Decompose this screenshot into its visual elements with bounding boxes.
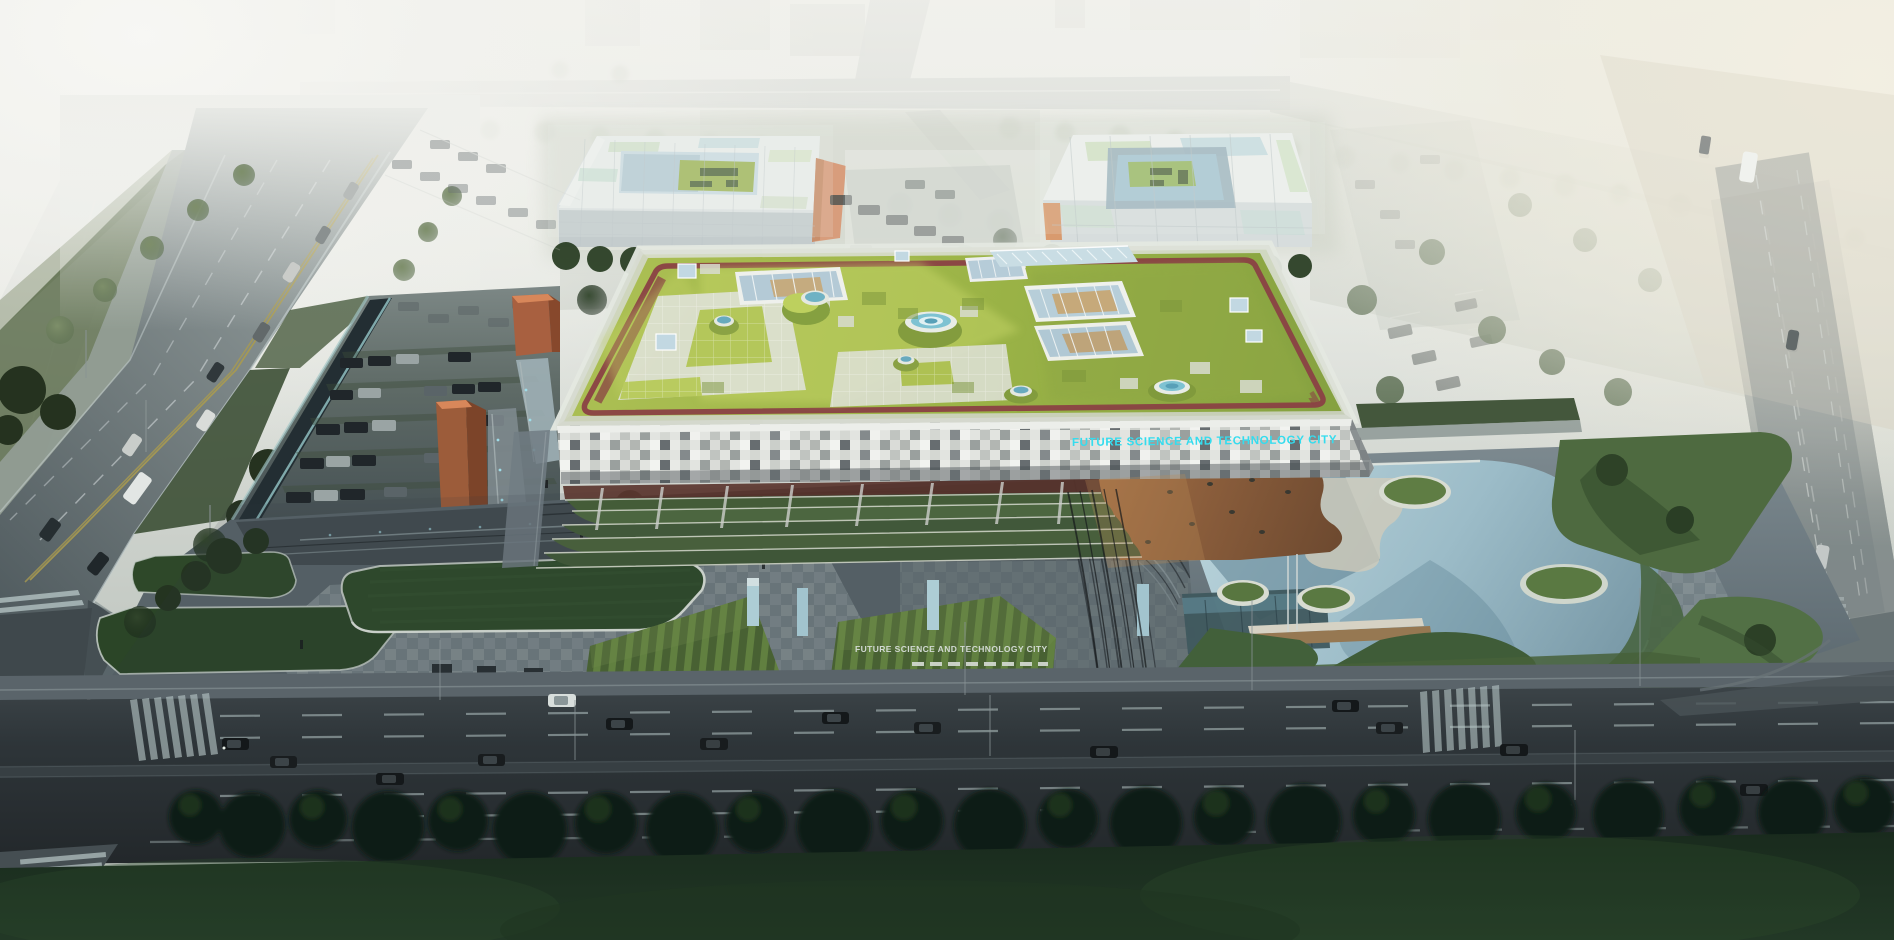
svg-text:FUTURE SCIENCE AND TECHNOLOGY: FUTURE SCIENCE AND TECHNOLOGY CITY bbox=[1072, 433, 1337, 449]
